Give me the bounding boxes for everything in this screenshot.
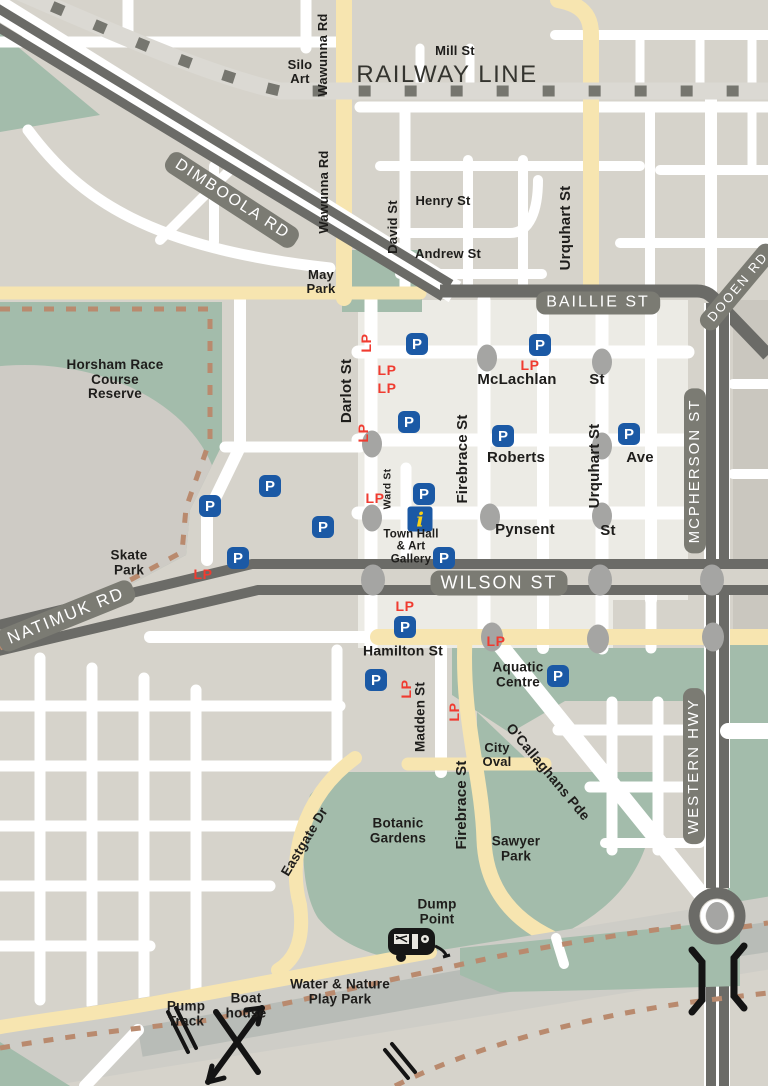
parking-icon: P xyxy=(365,669,387,691)
long-parking-marker: LP xyxy=(396,599,415,613)
long-parking-marker: LP xyxy=(378,363,397,377)
long-parking-marker: LP xyxy=(399,680,413,699)
label-pump-track: Pump Track xyxy=(167,999,205,1028)
label-firebrace-st: Firebrace St xyxy=(455,414,471,503)
label-dump-point: Dump Point xyxy=(417,897,456,926)
marker-overlay: PPPPPPPPPPPPPPLPLPLPLPLPLPLPLPLPLPLPiRAI… xyxy=(0,0,768,1086)
label-wawunna-rd-north: Wawunna Rd xyxy=(316,13,330,96)
long-parking-marker: LP xyxy=(378,381,397,395)
parking-icon: P xyxy=(529,334,551,356)
label-eastgate-dr: Eastgate Dr xyxy=(279,805,331,879)
label-firebrace-st-south: Firebrace St xyxy=(454,760,470,849)
label-hamilton-st: Hamilton St xyxy=(363,643,443,658)
long-parking-marker: LP xyxy=(356,424,370,443)
label-town-hall-art-gallery: Town Hall & Art Gallery xyxy=(383,528,438,565)
label-water-nature-play-park: Water & Nature Play Park xyxy=(290,977,390,1006)
label-ward-st: Ward St xyxy=(382,469,393,510)
label-baillie-st: BAILLIE ST xyxy=(536,292,660,315)
parking-icon: P xyxy=(227,547,249,569)
label-natimuk-rd: NATIMUK RD xyxy=(0,578,137,654)
town-map: PPPPPPPPPPPPPPLPLPLPLPLPLPLPLPLPLPLPiRAI… xyxy=(0,0,768,1086)
parking-icon: P xyxy=(394,616,416,638)
label-horsham-race-course-reserve: Horsham Race Course Reserve xyxy=(67,358,164,402)
parking-icon: P xyxy=(492,425,514,447)
parking-icon: P xyxy=(259,475,281,497)
label-andrew-st: Andrew St xyxy=(415,247,481,261)
long-parking-marker: LP xyxy=(359,334,373,353)
label-henry-st: Henry St xyxy=(415,194,470,208)
label-sawyer-park: Sawyer Park xyxy=(492,834,540,863)
label-wawunna-rd: Wawunna Rd xyxy=(317,150,331,233)
label-roberts: Roberts xyxy=(487,450,545,466)
label-madden-st: Madden St xyxy=(414,682,429,752)
label-urquhart-st: Urquhart St xyxy=(587,424,603,509)
label-city-oval: City Oval xyxy=(483,741,512,769)
label-skate-park: Skate Park xyxy=(110,548,147,577)
parking-icon: P xyxy=(406,333,428,355)
parking-icon: P xyxy=(398,411,420,433)
label-western-hwy: WESTERN HWY xyxy=(683,688,705,844)
parking-icon: P xyxy=(547,665,569,687)
label-pynsent: Pynsent xyxy=(495,522,555,538)
label-david-st: David St xyxy=(386,200,400,254)
label-silo-art: Silo Art xyxy=(288,58,313,86)
label-wilson-st: WILSON ST xyxy=(430,571,567,596)
label-ocallaghans-pde: O'Callaghans Pde xyxy=(503,721,593,824)
label-railway-line: RAILWAY LINE xyxy=(356,62,537,88)
label-dimboola-rd: DIMBOOLA RD xyxy=(162,149,303,252)
intersection-dot xyxy=(587,625,609,654)
long-parking-marker: LP xyxy=(521,358,540,372)
intersection-dot xyxy=(361,565,385,596)
intersection-dot xyxy=(477,345,497,372)
parking-icon: P xyxy=(199,495,221,517)
label-pynsent-st-suffix: St xyxy=(600,523,615,539)
label-may-park: May Park xyxy=(307,268,336,296)
label-mill-st: Mill St xyxy=(435,44,475,58)
long-parking-marker: LP xyxy=(194,567,213,581)
intersection-dot xyxy=(700,565,724,596)
intersection-dot xyxy=(702,623,724,652)
parking-icon: P xyxy=(312,516,334,538)
parking-icon: P xyxy=(413,483,435,505)
label-darlot-st: Darlot St xyxy=(339,359,355,423)
label-boat-house: Boat house xyxy=(226,991,267,1020)
label-roberts-ave-suffix: Ave xyxy=(626,450,654,466)
long-parking-marker: LP xyxy=(487,634,506,648)
parking-icon: P xyxy=(618,423,640,445)
label-mclachlan: McLachlan xyxy=(477,372,556,388)
long-parking-marker: LP xyxy=(447,703,461,722)
label-mclachlan-st-suffix: St xyxy=(589,372,604,388)
label-urquhart-st-north: Urquhart St xyxy=(558,186,574,271)
label-botanic-gardens: Botanic Gardens xyxy=(370,816,426,845)
label-mcpherson-st: MCPHERSON ST xyxy=(684,389,706,554)
label-aquatic-centre: Aquatic Centre xyxy=(493,660,544,689)
intersection-dot xyxy=(362,505,382,532)
intersection-dot xyxy=(588,565,612,596)
label-dooen-rd: DOOEN RD xyxy=(696,240,768,334)
